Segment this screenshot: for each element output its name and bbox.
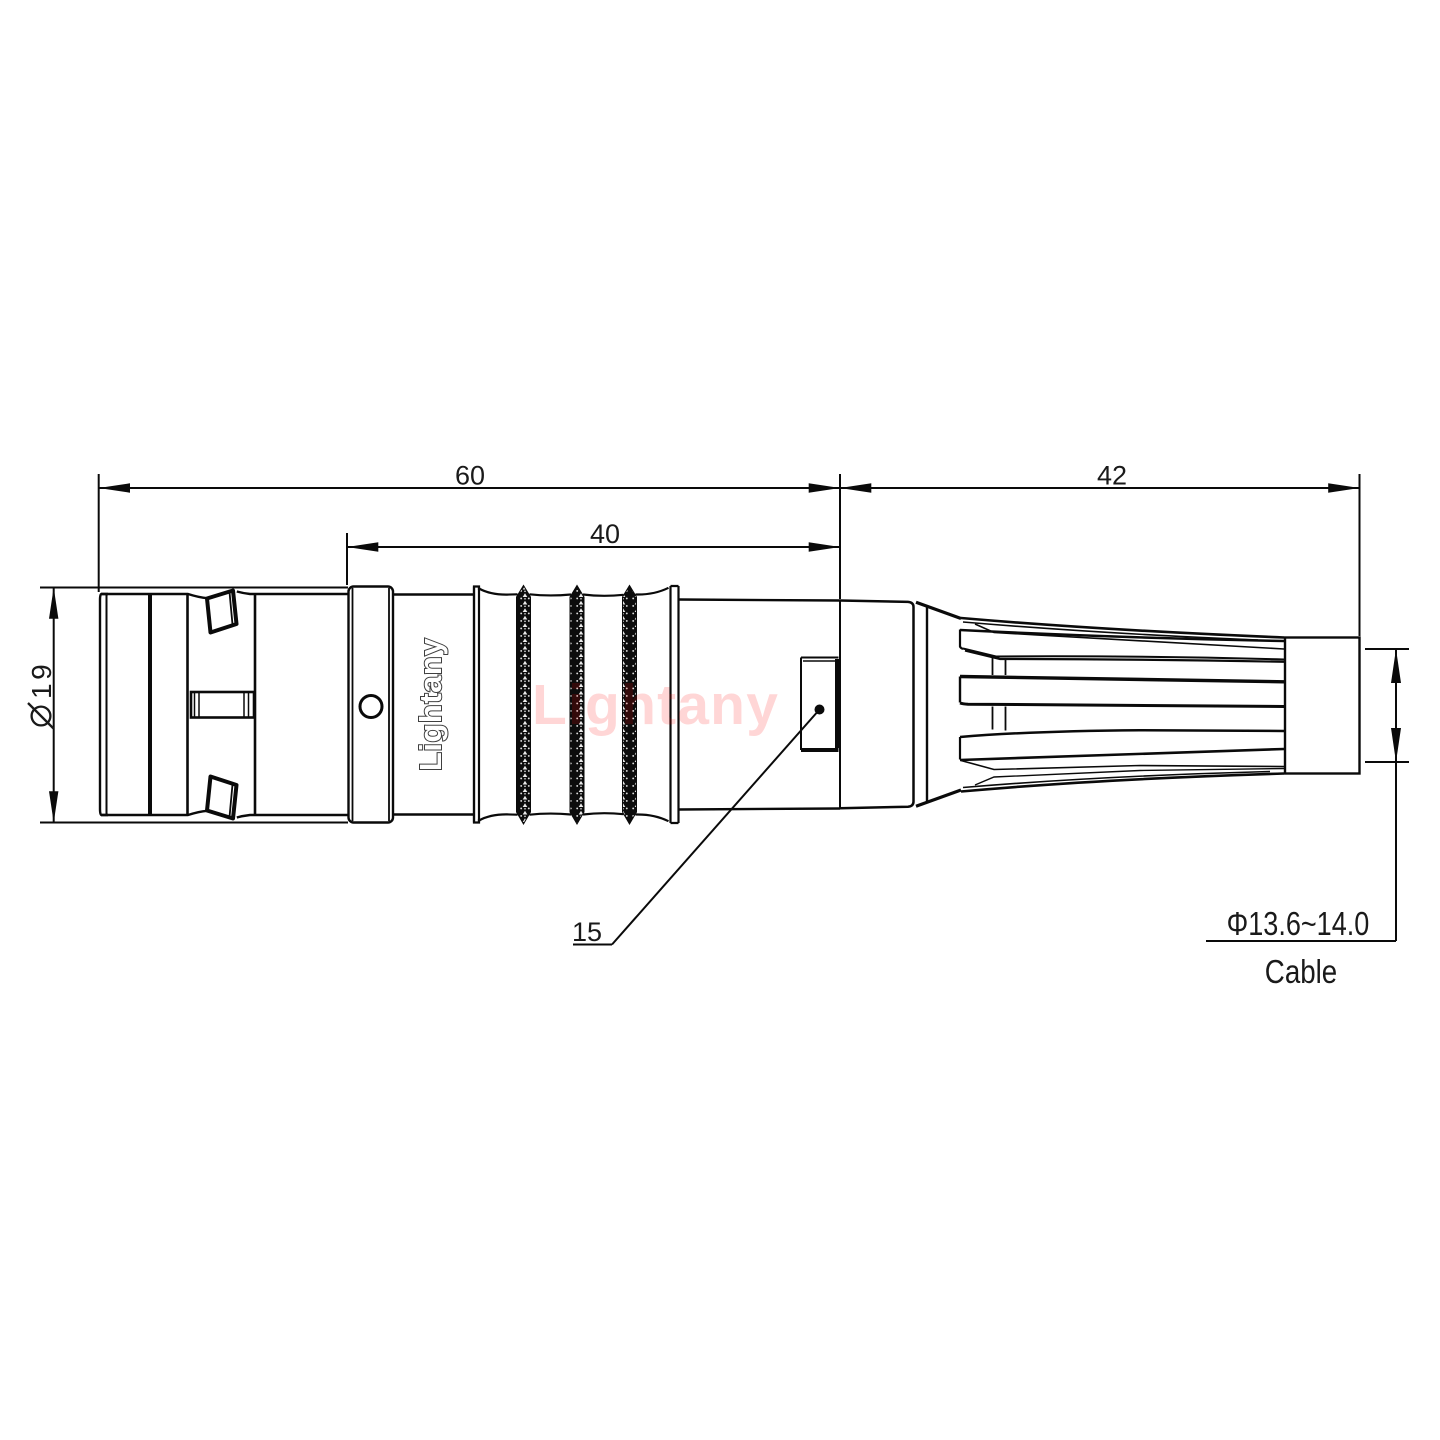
svg-text:60: 60 — [455, 461, 485, 491]
svg-text:Lightany: Lightany — [532, 673, 779, 737]
svg-text:42: 42 — [1097, 461, 1127, 491]
svg-text:Cable: Cable — [1265, 954, 1337, 991]
svg-text:19: 19 — [26, 661, 57, 699]
svg-text:Φ13.6~14.0: Φ13.6~14.0 — [1227, 907, 1370, 943]
svg-text:15: 15 — [572, 917, 602, 947]
svg-text:Lightany: Lightany — [413, 638, 448, 771]
svg-text:40: 40 — [590, 519, 620, 549]
